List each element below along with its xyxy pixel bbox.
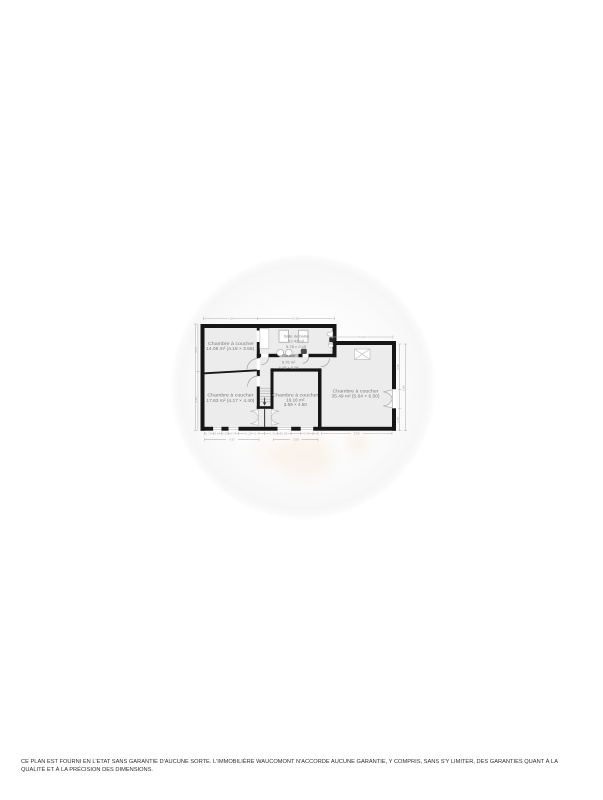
svg-text:6.86: 6.86 <box>402 385 406 391</box>
svg-text:1.75: 1.75 <box>396 417 400 423</box>
svg-text:6.76 m²: 6.76 m² <box>282 360 296 365</box>
svg-text:1.29: 1.29 <box>246 432 252 436</box>
svg-text:35.49 m² (5.64 × 6.50): 35.49 m² (5.64 × 6.50) <box>332 394 380 399</box>
svg-text:14.08 m² (4.18 × 3.56): 14.08 m² (4.18 × 3.56) <box>206 346 254 351</box>
svg-text:4.38: 4.38 <box>227 317 233 321</box>
svg-text:1.31: 1.31 <box>270 432 276 436</box>
svg-text:Couloir: Couloir <box>282 353 295 358</box>
svg-text:5.98: 5.98 <box>293 317 299 321</box>
svg-text:3.56: 3.56 <box>194 347 198 353</box>
svg-text:3.55: 3.55 <box>396 364 400 370</box>
svg-text:4.40: 4.40 <box>194 397 198 403</box>
svg-text:0.70: 0.70 <box>206 432 212 436</box>
svg-text:CE PLAN EST FOURNI EN L'ETAT S: CE PLAN EST FOURNI EN L'ETAT SANS GARANT… <box>21 758 558 765</box>
svg-text:QUALITÉ ET À LA PRÉCISION DES: QUALITÉ ET À LA PRÉCISION DES DIMENSIONS… <box>21 766 153 773</box>
svg-text:4.45 × 5.98: 4.45 × 5.98 <box>279 365 300 370</box>
svg-text:12.43 m²: 12.43 m² <box>288 338 304 343</box>
svg-text:1.09: 1.09 <box>281 432 287 436</box>
svg-text:5.09: 5.09 <box>359 335 365 339</box>
svg-text:5.78 × 2.15: 5.78 × 2.15 <box>286 344 307 349</box>
svg-text:5.64: 5.64 <box>354 431 360 435</box>
svg-text:0.98: 0.98 <box>304 432 310 436</box>
svg-text:4.37: 4.37 <box>229 438 235 442</box>
svg-text:0.78: 0.78 <box>231 432 237 436</box>
svg-text:3.59: 3.59 <box>293 438 299 442</box>
svg-text:1.44: 1.44 <box>255 432 261 436</box>
svg-text:Chambre à coucher: Chambre à coucher <box>207 393 254 398</box>
svg-text:0.64: 0.64 <box>214 432 220 436</box>
svg-text:3.59 × 4.50: 3.59 × 4.50 <box>284 402 308 407</box>
svg-text:0.59: 0.59 <box>222 432 228 436</box>
svg-text:17.63 m² (4.17 × 4.40): 17.63 m² (4.17 × 4.40) <box>206 398 254 403</box>
